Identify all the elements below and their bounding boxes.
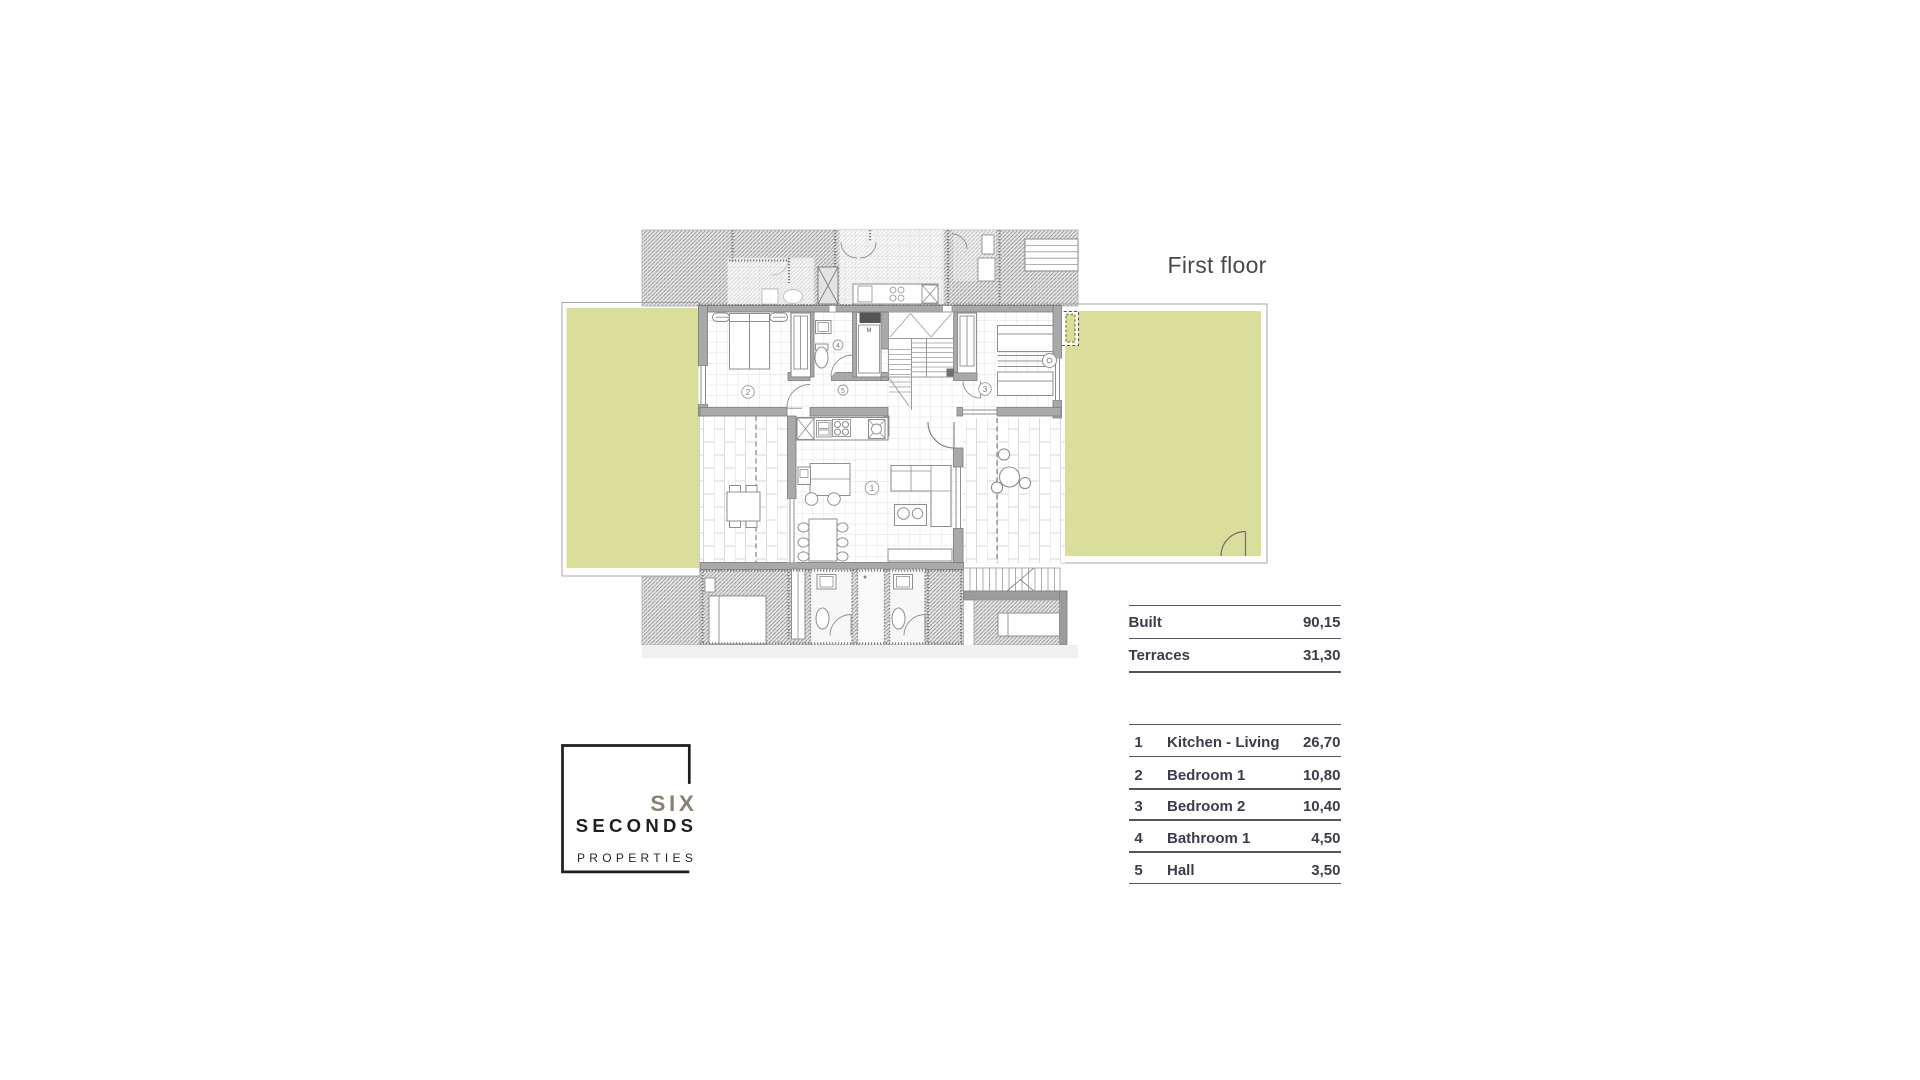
svg-text:SECONDS: SECONDS [576, 815, 698, 836]
svg-text:M: M [867, 328, 872, 334]
svg-text:2: 2 [746, 388, 751, 397]
svg-text:5: 5 [841, 388, 845, 395]
svg-text:4: 4 [836, 343, 840, 350]
svg-text:1: 1 [870, 484, 875, 493]
svg-text:SIX: SIX [650, 791, 697, 816]
svg-text:PROPERTIES: PROPERTIES [577, 851, 697, 865]
svg-text:3: 3 [983, 385, 988, 394]
